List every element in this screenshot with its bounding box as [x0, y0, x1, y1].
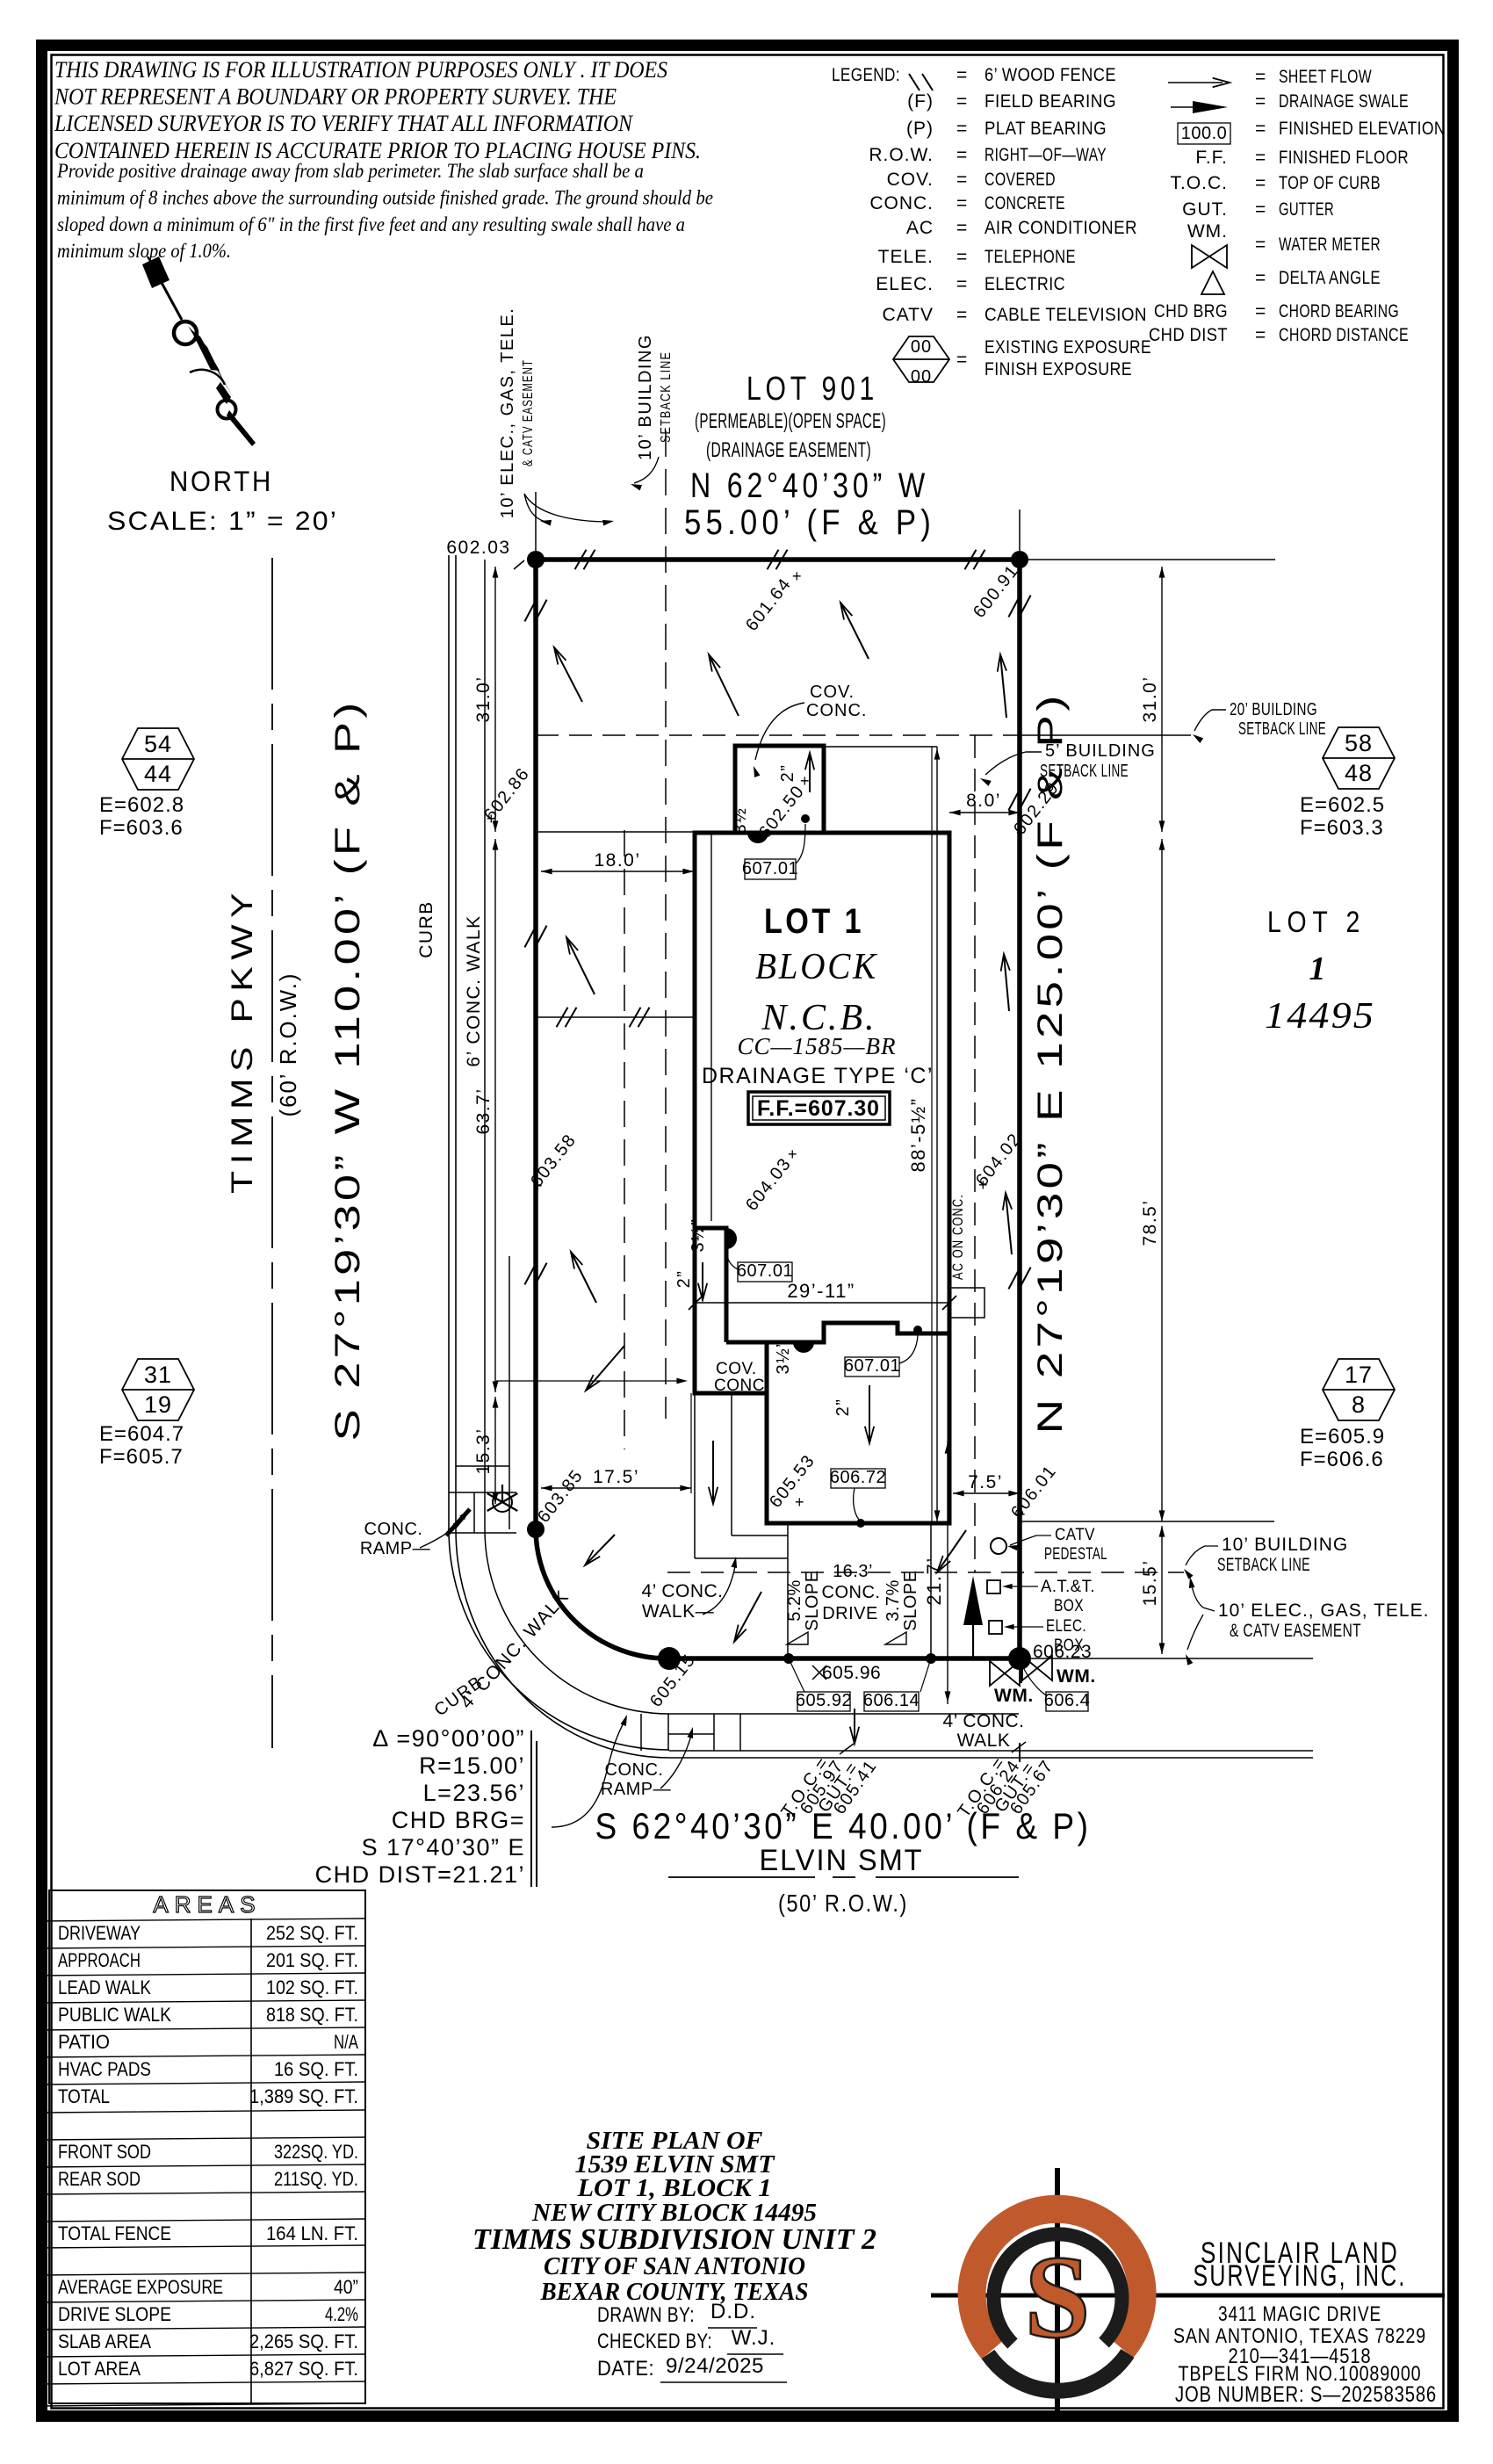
svg-text:3411 MAGIC DRIVE: 3411 MAGIC DRIVE [1218, 2302, 1381, 2326]
svg-text:201 SQ. FT.: 201 SQ. FT. [266, 1949, 358, 1971]
svg-text:S 62°40’30” E 40.00’ (F & P): S 62°40’30” E 40.00’ (F & P) [595, 1805, 1092, 1846]
svg-text:1: 1 [1309, 950, 1326, 987]
svg-text:14495: 14495 [1265, 996, 1375, 1037]
svg-text:CC—1585—BR: CC—1585—BR [737, 1033, 896, 1059]
svg-text:15.5’: 15.5’ [1140, 1559, 1160, 1606]
svg-text:(DRAINAGE EASEMENT): (DRAINAGE EASEMENT) [706, 438, 871, 462]
svg-text:606.4: 606.4 [1044, 1691, 1091, 1710]
svg-text:S 17°40’30” E: S 17°40’30” E [362, 1834, 525, 1861]
svg-text:TOTAL FENCE: TOTAL FENCE [58, 2222, 171, 2244]
svg-text:SCALE: 1” = 20’: SCALE: 1” = 20’ [107, 507, 338, 536]
svg-text:4.2%: 4.2% [325, 2303, 358, 2325]
svg-text:minimum of 8 inches above the: minimum of 8 inches above the surroundin… [57, 186, 713, 208]
svg-text:+: + [1016, 824, 1027, 842]
svg-text:ELECTRIC: ELECTRIC [985, 274, 1065, 294]
svg-text:CHORD DISTANCE: CHORD DISTANCE [1279, 325, 1409, 345]
svg-text:4’ CONC.: 4’ CONC. [942, 1711, 1024, 1731]
svg-text:FINISHED FLOOR: FINISHED FLOOR [1279, 148, 1409, 168]
svg-text:=: = [956, 65, 968, 85]
svg-text:17.5’: 17.5’ [593, 1467, 639, 1487]
svg-text:WALK—: WALK— [642, 1601, 714, 1622]
svg-text:5.2%: 5.2% [785, 1579, 804, 1622]
svg-text:211SQ. YD.: 211SQ. YD. [274, 2168, 358, 2190]
svg-text:TELEPHONE: TELEPHONE [985, 247, 1076, 267]
svg-text:CABLE TELEVISION: CABLE TELEVISION [985, 305, 1147, 325]
svg-text:BEXAR COUNTY, TEXAS: BEXAR COUNTY, TEXAS [540, 2279, 809, 2306]
svg-text:818 SQ. FT.: 818 SQ. FT. [266, 2004, 358, 2026]
svg-text:F=606.6: F=606.6 [1300, 1448, 1384, 1471]
svg-text:10’ BUILDING: 10’ BUILDING [1222, 1535, 1348, 1555]
svg-text:44: 44 [144, 761, 172, 787]
svg-text:BOX: BOX [1054, 1637, 1084, 1655]
svg-text:+: + [788, 1145, 798, 1163]
svg-text:WALK: WALK [957, 1731, 1011, 1751]
svg-text:607.01: 607.01 [844, 1356, 900, 1376]
svg-text:minimum slope of 1.0%.: minimum slope of 1.0%. [57, 240, 231, 262]
svg-text:=: = [1255, 67, 1267, 87]
svg-text:164 LN. FT.: 164 LN. FT. [266, 2222, 358, 2244]
svg-text:NOT REPRESENT A BOUNDARY OR PR: NOT REPRESENT A BOUNDARY OR PROPERTY SUR… [54, 84, 617, 110]
svg-text:CATV: CATV [883, 305, 934, 325]
svg-text:607.01: 607.01 [737, 1261, 793, 1281]
svg-text:N 62°40’30” W: N 62°40’30” W [690, 466, 929, 505]
svg-text:3½”: 3½” [689, 1218, 708, 1253]
svg-text:EXISTING EXPOSURE: EXISTING EXPOSURE [985, 337, 1151, 358]
svg-text:LOT 2: LOT 2 [1267, 906, 1366, 939]
svg-text:29’-11”: 29’-11” [787, 1280, 855, 1302]
svg-text:31: 31 [144, 1362, 172, 1388]
svg-text:9/24/2025: 9/24/2025 [666, 2354, 764, 2378]
svg-text:WATER METER: WATER METER [1279, 235, 1381, 255]
svg-text:WM.: WM. [1187, 221, 1228, 242]
svg-text:CONC.: CONC. [714, 1377, 770, 1395]
svg-text:00: 00 [911, 367, 932, 387]
svg-text:AC: AC [906, 218, 934, 238]
svg-text:252 SQ. FT.: 252 SQ. FT. [266, 1922, 358, 1944]
svg-text:2”: 2” [674, 1270, 694, 1289]
svg-text:6’ WOOD FENCE: 6’ WOOD FENCE [985, 65, 1116, 85]
svg-text:2”: 2” [833, 1398, 853, 1417]
svg-text:100.0: 100.0 [1181, 124, 1228, 143]
svg-text:=: = [1255, 235, 1267, 255]
svg-text:LOT 1: LOT 1 [764, 902, 864, 941]
svg-text:E=605.9: E=605.9 [1300, 1425, 1385, 1449]
svg-text:CHD DIST: CHD DIST [1149, 325, 1228, 345]
svg-text:RIGHT—OF—WAY: RIGHT—OF—WAY [985, 145, 1107, 165]
svg-text:APPROACH: APPROACH [58, 1949, 141, 1971]
svg-text:607.01: 607.01 [742, 859, 798, 878]
svg-text:322SQ. YD.: 322SQ. YD. [274, 2141, 358, 2163]
svg-text:=: = [1255, 268, 1267, 288]
svg-text:DRIVE SLOPE: DRIVE SLOPE [58, 2303, 171, 2325]
svg-text:SURVEYING, INC.: SURVEYING, INC. [1194, 2259, 1407, 2293]
svg-text:LOT 1, BLOCK 1: LOT 1, BLOCK 1 [576, 2175, 771, 2202]
svg-text:606.14: 606.14 [863, 1691, 920, 1710]
svg-text:CONC.: CONC. [806, 701, 867, 720]
svg-text:LEGEND:: LEGEND: [832, 65, 900, 85]
svg-text:CATV: CATV [1055, 1526, 1095, 1544]
svg-text:DRIVE: DRIVE [822, 1604, 878, 1623]
svg-text:TIMMS SUBDIVISION UNIT 2: TIMMS SUBDIVISION UNIT 2 [472, 2223, 876, 2256]
svg-text:SHEET FLOW: SHEET FLOW [1279, 67, 1372, 87]
svg-text:DRIVEWAY: DRIVEWAY [58, 1922, 141, 1944]
svg-text:REAR SOD: REAR SOD [58, 2168, 141, 2190]
svg-text:JOB NUMBER: S—202583586: JOB NUMBER: S—202583586 [1175, 2382, 1437, 2407]
svg-text:SLOPE: SLOPE [803, 1570, 822, 1630]
svg-text:+: + [795, 1493, 805, 1511]
svg-text:54: 54 [144, 731, 172, 757]
svg-text:3½”: 3½” [731, 800, 750, 835]
svg-text:=: = [956, 274, 968, 294]
svg-text:(50’ R.O.W.): (50’ R.O.W.) [778, 1890, 908, 1917]
svg-text:78.5’: 78.5’ [1140, 1199, 1160, 1246]
svg-text:6,827 SQ. FT.: 6,827 SQ. FT. [249, 2358, 358, 2380]
svg-text:Δ =90°00’00”: Δ =90°00’00” [372, 1725, 525, 1752]
svg-text:CURB: CURB [416, 900, 436, 958]
svg-text:+: + [533, 1177, 544, 1195]
svg-text:CONC.: CONC. [364, 1520, 423, 1539]
svg-text:E=604.7: E=604.7 [99, 1422, 184, 1446]
svg-text:58: 58 [1345, 730, 1373, 756]
svg-text:F.F.: F.F. [1195, 148, 1228, 168]
svg-text:TOTAL: TOTAL [58, 2085, 110, 2107]
svg-text:605.92: 605.92 [796, 1691, 852, 1710]
svg-text:R=15.00’: R=15.00’ [419, 1752, 525, 1779]
svg-text:SLAB AREA: SLAB AREA [58, 2330, 151, 2352]
svg-text:2,265 SQ. FT.: 2,265 SQ. FT. [249, 2330, 358, 2352]
svg-text:E=602.8: E=602.8 [99, 793, 184, 817]
svg-text:GUT.: GUT. [1182, 199, 1228, 220]
svg-text:21.7’: 21.7’ [923, 1557, 945, 1605]
svg-text:sloped down a minimum of 6" in: sloped down a minimum of 6" in the first… [57, 213, 685, 235]
svg-text:=: = [1255, 148, 1267, 168]
svg-text:+: + [978, 1176, 989, 1194]
svg-text:6’ CONC. WALK: 6’ CONC. WALK [464, 914, 484, 1066]
svg-text:F.F.=607.30: F.F.=607.30 [757, 1096, 880, 1121]
svg-text:3.7%: 3.7% [884, 1579, 903, 1622]
svg-text:N/A: N/A [334, 2031, 358, 2053]
svg-text:F=605.7: F=605.7 [99, 1445, 184, 1469]
svg-text:+: + [487, 810, 497, 827]
svg-text:3½”: 3½” [774, 1340, 793, 1375]
svg-text:40”: 40” [334, 2276, 358, 2298]
svg-text:S 27°19’30” W 110.00’ (F & P): S 27°19’30” W 110.00’ (F & P) [328, 699, 367, 1442]
svg-text:WM.: WM. [1057, 1666, 1096, 1687]
svg-text:AREAS: AREAS [153, 1891, 261, 1918]
svg-text:SETBACK LINE: SETBACK LINE [1040, 762, 1129, 781]
svg-text:AIR CONDITIONER: AIR CONDITIONER [985, 218, 1137, 238]
svg-text:88’-5½”: 88’-5½” [907, 1097, 929, 1172]
svg-text:=: = [1255, 325, 1267, 345]
svg-text:DATE:: DATE: [597, 2357, 654, 2381]
svg-text:COV.: COV. [716, 1360, 757, 1378]
svg-text:SETBACK LINE: SETBACK LINE [659, 351, 674, 443]
svg-text:48: 48 [1345, 760, 1373, 786]
svg-text:Provide positive drainage away: Provide positive drainage away from slab… [56, 160, 644, 182]
svg-text:=: = [1255, 173, 1267, 193]
svg-text:(F): (F) [907, 91, 934, 112]
svg-text:31.0’: 31.0’ [1140, 676, 1160, 722]
svg-text:CITY OF SAN ANTONIO: CITY OF SAN ANTONIO [544, 2253, 805, 2280]
svg-text:COV.: COV. [810, 683, 855, 702]
svg-text:CHORD BEARING: CHORD BEARING [1279, 301, 1399, 322]
svg-text:TELE.: TELE. [878, 247, 934, 267]
svg-text:55.00’ (F & P): 55.00’ (F & P) [684, 503, 935, 542]
svg-text:00: 00 [911, 337, 932, 357]
svg-text:2”: 2” [778, 764, 797, 783]
svg-text:AVERAGE EXPOSURE: AVERAGE EXPOSURE [58, 2276, 223, 2298]
svg-text:10’ ELEC., GAS, TELE.: 10’ ELEC., GAS, TELE. [1218, 1601, 1429, 1621]
svg-text:DRAINAGE TYPE ‘C’: DRAINAGE TYPE ‘C’ [702, 1064, 934, 1088]
svg-text:8: 8 [1352, 1391, 1366, 1418]
svg-text:602.03: 602.03 [446, 538, 510, 558]
svg-text:20’ BUILDING: 20’ BUILDING [1230, 700, 1317, 719]
svg-text:RAMP—: RAMP— [601, 1780, 671, 1799]
svg-text:=: = [956, 170, 968, 190]
svg-text:PLAT BEARING: PLAT BEARING [985, 119, 1107, 139]
svg-text:LICENSED SURVEYOR IS TO VERIFY: LICENSED SURVEYOR IS TO VERIFY THAT ALL … [54, 111, 633, 136]
svg-text:ELVIN SMT: ELVIN SMT [760, 1844, 924, 1877]
svg-text:4’ CONC.: 4’ CONC. [641, 1581, 723, 1601]
svg-text:102 SQ. FT.: 102 SQ. FT. [266, 1976, 358, 1998]
svg-text:& CATV EASEMENT: & CATV EASEMENT [521, 359, 536, 466]
svg-text:DRAINAGE SWALE: DRAINAGE SWALE [1279, 91, 1409, 112]
svg-text:19: 19 [144, 1391, 172, 1418]
svg-text:SLOPE: SLOPE [901, 1570, 920, 1630]
svg-text:CHD BRG=: CHD BRG= [392, 1807, 525, 1833]
svg-text:=: = [956, 218, 968, 238]
svg-text:=: = [1255, 91, 1267, 112]
svg-text:PUBLIC WALK: PUBLIC WALK [58, 2004, 171, 2026]
svg-text:PEDESTAL: PEDESTAL [1044, 1545, 1107, 1564]
svg-text:17: 17 [1345, 1362, 1373, 1388]
svg-text:1,389 SQ. FT.: 1,389 SQ. FT. [249, 2085, 358, 2107]
svg-text:=: = [956, 119, 968, 139]
svg-text:31.0’: 31.0’ [473, 676, 494, 722]
svg-text:=: = [956, 91, 968, 112]
svg-text:CONC.: CONC. [869, 193, 934, 213]
svg-text:COV.: COV. [887, 170, 934, 190]
svg-text:TOP OF CURB: TOP OF CURB [1279, 173, 1381, 193]
svg-text:=: = [956, 145, 968, 165]
svg-text:ELEC.: ELEC. [876, 274, 934, 294]
svg-text:10’ BUILDING: 10’ BUILDING [636, 334, 655, 460]
svg-text:CHECKED BY:: CHECKED BY: [597, 2330, 712, 2353]
svg-text:NORTH: NORTH [169, 466, 273, 497]
svg-text:16.3’: 16.3’ [833, 1562, 873, 1581]
svg-text:=: = [956, 247, 968, 267]
svg-text:HVAC PADS: HVAC PADS [58, 2058, 151, 2080]
svg-text:PATIO: PATIO [58, 2031, 110, 2053]
svg-text:(60’ R.O.W.): (60’ R.O.W.) [275, 972, 301, 1117]
svg-text:LOT AREA: LOT AREA [58, 2358, 141, 2380]
svg-text:(PERMEABLE)(OPEN SPACE): (PERMEABLE)(OPEN SPACE) [695, 409, 886, 433]
svg-text:606.72: 606.72 [830, 1468, 886, 1487]
svg-text:F=603.6: F=603.6 [99, 816, 184, 840]
svg-text:605.96: 605.96 [822, 1663, 881, 1683]
svg-text:ELEC.: ELEC. [1046, 1617, 1086, 1636]
svg-text:GUTTER: GUTTER [1279, 199, 1334, 220]
svg-text:=: = [1255, 301, 1267, 322]
svg-text:CONCRETE: CONCRETE [985, 193, 1065, 213]
svg-text:R.O.W.: R.O.W. [869, 145, 934, 165]
svg-text:F=603.3: F=603.3 [1300, 816, 1384, 840]
svg-text:+: + [1016, 1506, 1027, 1523]
svg-text:RAMP—: RAMP— [360, 1539, 430, 1558]
svg-text:8.0’: 8.0’ [966, 791, 1001, 811]
svg-text:DRAWN BY:: DRAWN BY: [597, 2303, 695, 2327]
svg-text:63.7’: 63.7’ [473, 1087, 494, 1134]
svg-text:=: = [956, 350, 969, 370]
svg-text:16 SQ. FT.: 16 SQ. FT. [274, 2058, 358, 2080]
svg-text:CONC.: CONC. [605, 1760, 664, 1780]
svg-text:FIELD BEARING: FIELD BEARING [985, 91, 1116, 112]
svg-text:=: = [956, 193, 968, 213]
svg-text:SETBACK LINE: SETBACK LINE [1217, 1555, 1310, 1575]
svg-text:7.5’: 7.5’ [968, 1472, 1003, 1492]
svg-text:A.T.&T.: A.T.&T. [1041, 1578, 1095, 1596]
svg-text:DELTA ANGLE: DELTA ANGLE [1279, 268, 1381, 288]
svg-text:=: = [956, 305, 968, 325]
svg-text:18.0’: 18.0’ [594, 850, 640, 871]
svg-text:LOT 901: LOT 901 [746, 371, 878, 408]
svg-text:SETBACK LINE: SETBACK LINE [1238, 719, 1326, 739]
svg-text:BLOCK: BLOCK [755, 947, 878, 987]
svg-text:AC ON CONC.: AC ON CONC. [949, 1194, 966, 1280]
svg-text:+: + [792, 567, 803, 585]
svg-text:COVERED: COVERED [985, 170, 1056, 190]
svg-text:=: = [1255, 119, 1267, 139]
svg-text:S: S [1024, 2232, 1090, 2363]
svg-text:L=23.56’: L=23.56’ [423, 1780, 525, 1806]
svg-text:LEAD WALK: LEAD WALK [58, 1976, 151, 1998]
svg-text:(P): (P) [906, 119, 934, 139]
svg-text:D.D.: D.D. [710, 2300, 756, 2323]
svg-text:CHD BRG: CHD BRG [1154, 301, 1228, 322]
svg-text:10’ ELEC., GAS, TELE.: 10’ ELEC., GAS, TELE. [498, 307, 517, 518]
svg-text:5’ BUILDING: 5’ BUILDING [1045, 741, 1156, 761]
svg-text:15.3’: 15.3’ [473, 1427, 494, 1474]
svg-text:FINISHED ELEVATION: FINISHED ELEVATION [1279, 119, 1446, 139]
svg-text:TIMMS PKWY: TIMMS PKWY [226, 886, 259, 1194]
svg-text:& CATV EASEMENT: & CATV EASEMENT [1230, 1621, 1361, 1641]
svg-text:E=602.5: E=602.5 [1300, 793, 1385, 817]
svg-text:CHD DIST=21.21’: CHD DIST=21.21’ [315, 1861, 525, 1888]
svg-text:+: + [800, 772, 811, 790]
svg-text:FINISH EXPOSURE: FINISH EXPOSURE [985, 359, 1132, 379]
svg-text:CONC.: CONC. [822, 1583, 881, 1602]
svg-text:WM.: WM. [994, 1686, 1034, 1706]
svg-text:T.O.C.: T.O.C. [1170, 173, 1228, 193]
svg-text:BOX: BOX [1054, 1597, 1084, 1615]
svg-text:FRONT SOD: FRONT SOD [58, 2141, 151, 2163]
svg-text:=: = [1255, 199, 1267, 220]
svg-text:THIS DRAWING IS FOR ILLUSTRATI: THIS DRAWING IS FOR ILLUSTRATION PURPOSE… [54, 57, 667, 83]
svg-text:W.J.: W.J. [732, 2326, 776, 2350]
